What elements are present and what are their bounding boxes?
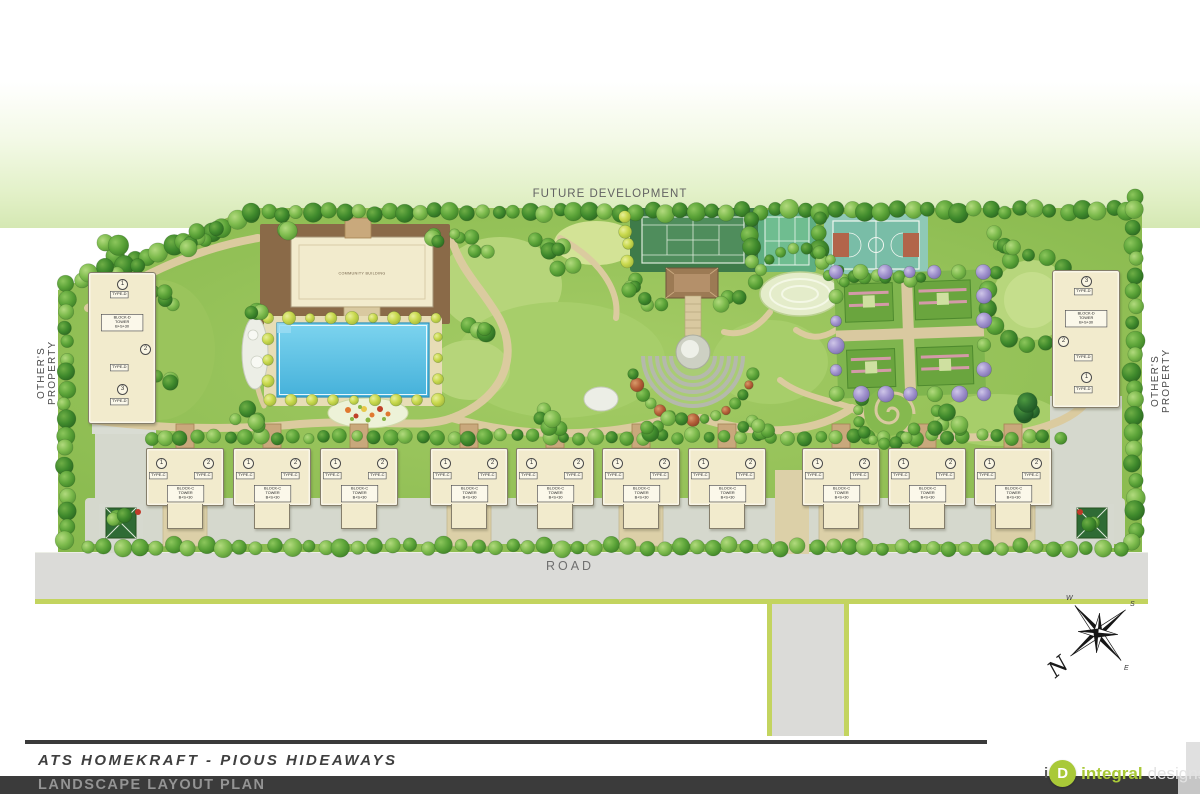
others-property-label-right: OTHER'S PROPERTY: [1150, 326, 1172, 436]
tower-block: 12TYPE-CTYPE-CBLOCK-CTOWERB+S+30: [888, 448, 966, 530]
unit-type-label: TYPE-D: [1074, 354, 1092, 361]
tower-block: 12TYPE-CTYPE-CBLOCK-CTOWERB+S+30: [233, 448, 311, 530]
unit-number: 1: [440, 458, 451, 469]
tower-block: 12TYPE-CTYPE-CBLOCK-CTOWERB+S+30: [430, 448, 508, 530]
unit-type-label: TYPE-C: [519, 472, 537, 479]
unit-type-label: TYPE-D: [1074, 288, 1092, 295]
tower-info-box: BLOCK-CTOWERB+S+30: [823, 485, 860, 502]
unit-type-label: TYPE-D: [110, 291, 128, 298]
tower-block: 12TYPE-CTYPE-CBLOCK-CTOWERB+S+30: [146, 448, 224, 530]
unit-number: 2: [659, 458, 670, 469]
unit-number: 2: [203, 458, 214, 469]
unit-type-label: TYPE-C: [323, 472, 341, 479]
tower-info-box: BLOCK-CTOWERB+S+30: [623, 485, 660, 502]
unit-type-label: TYPE-C: [281, 472, 299, 479]
tower-wing: [341, 504, 377, 529]
unit-type-label: TYPE-D: [110, 398, 128, 405]
logo-suffix: designs: [1148, 764, 1200, 784]
unit-number: 1: [156, 458, 167, 469]
tower-info-box: BLOCK-CTOWERB+S+30: [254, 485, 291, 502]
tower-wing: [995, 504, 1031, 529]
tower-info-box: BLOCK-CTOWERB+S+30: [341, 485, 378, 502]
unit-type-label: TYPE-C: [149, 472, 167, 479]
unit-number: 1: [812, 458, 823, 469]
plan-title-bar: LANDSCAPE LAYOUT PLAN: [0, 776, 1178, 794]
unit-number: 1: [1081, 372, 1092, 383]
unit-number: 1: [330, 458, 341, 469]
tower-wing: [823, 504, 859, 529]
unit-number: 2: [487, 458, 498, 469]
tower-block: 12TYPE-CTYPE-CBLOCK-CTOWERB+S+30: [802, 448, 880, 530]
future-development-label: FUTURE DEVELOPMENT: [480, 188, 740, 200]
unit-type-label: TYPE-C: [564, 472, 582, 479]
tower-info-line: B+S+30: [1066, 321, 1107, 325]
others-property-label-left: OTHER'S PROPERTY: [36, 318, 58, 428]
logo-d-letter: D: [1057, 765, 1068, 782]
unit-number: 2: [290, 458, 301, 469]
unit-type-label: TYPE-C: [478, 472, 496, 479]
tower-block-right: 3 TYPE-D BLOCK-D TOWER B+S+30 2 TYPE-D 1…: [1052, 270, 1120, 408]
logo-name: integral: [1081, 764, 1142, 784]
tower-block: 12TYPE-CTYPE-CBLOCK-CTOWERB+S+30: [516, 448, 594, 530]
tower-info-line: B+S+30: [624, 496, 660, 500]
residential-towers-layer: 1 TYPE-D BLOCK-D TOWER B+S+30 2 TYPE-D 3…: [0, 0, 1200, 794]
unit-type-label: TYPE-D: [110, 364, 128, 371]
unit-type-label: TYPE-C: [805, 472, 823, 479]
unit-type-label: TYPE-C: [605, 472, 623, 479]
tower-info-line: B+S+30: [710, 496, 746, 500]
tower-info-line: B+S+30: [910, 496, 946, 500]
unit-type-label: TYPE-C: [1022, 472, 1040, 479]
tower-wing: [451, 504, 487, 529]
tower-wing: [709, 504, 745, 529]
tower-info-line: B+S+30: [102, 325, 143, 329]
tower-block-left: 1 TYPE-D BLOCK-D TOWER B+S+30 2 TYPE-D 3…: [88, 272, 156, 424]
tower-wing: [909, 504, 945, 529]
unit-number: 1: [984, 458, 995, 469]
unit-type-label: TYPE-C: [194, 472, 212, 479]
tower-block: 12TYPE-CTYPE-CBLOCK-CTOWERB+S+30: [320, 448, 398, 530]
unit-number: 3: [1081, 276, 1092, 287]
unit-number: 1: [698, 458, 709, 469]
community-building-label: COMMUNITY BUILDING: [331, 272, 393, 276]
unit-number: 2: [859, 458, 870, 469]
unit-type-label: TYPE-D: [1074, 386, 1092, 393]
tower-info-line: B+S+30: [452, 496, 488, 500]
tower-info-line: B+S+30: [996, 496, 1032, 500]
unit-type-label: TYPE-C: [977, 472, 995, 479]
plan-title: LANDSCAPE LAYOUT PLAN: [38, 776, 266, 794]
logo-circle-mark: D: [1049, 760, 1076, 787]
unit-number: 3: [117, 384, 128, 395]
road-label: ROAD: [500, 559, 640, 573]
tower-wing: [537, 504, 573, 529]
unit-number: 1: [526, 458, 537, 469]
unit-type-label: TYPE-C: [236, 472, 254, 479]
unit-number: 2: [745, 458, 756, 469]
unit-number: 1: [243, 458, 254, 469]
tower-info-box: BLOCK-CTOWERB+S+30: [995, 485, 1032, 502]
tower-block: 12TYPE-CTYPE-CBLOCK-CTOWERB+S+30: [974, 448, 1052, 530]
unit-number: 2: [1058, 336, 1069, 347]
tower-info-box: BLOCK-CTOWERB+S+30: [909, 485, 946, 502]
unit-number: 1: [117, 279, 128, 290]
tower-wing: [167, 504, 203, 529]
tower-block: 12TYPE-CTYPE-CBLOCK-CTOWERB+S+30: [602, 448, 680, 530]
unit-type-label: TYPE-C: [736, 472, 754, 479]
footer-rule: [25, 740, 987, 744]
unit-number: 1: [898, 458, 909, 469]
tower-info-box: BLOCK-D TOWER B+S+30: [101, 314, 143, 331]
unit-type-label: TYPE-C: [936, 472, 954, 479]
unit-type-label: TYPE-C: [368, 472, 386, 479]
integral-designs-logo: i D integral designs: [1044, 760, 1200, 787]
tower-wing: [623, 504, 659, 529]
tower-info-box: BLOCK-CTOWERB+S+30: [537, 485, 574, 502]
tower-info-box: BLOCK-D TOWER B+S+30: [1065, 310, 1107, 327]
unit-type-label: TYPE-C: [433, 472, 451, 479]
tower-info-line: B+S+30: [538, 496, 574, 500]
tower-info-box: BLOCK-CTOWERB+S+30: [451, 485, 488, 502]
tower-info-line: B+S+30: [824, 496, 860, 500]
tower-block: 12TYPE-CTYPE-CBLOCK-CTOWERB+S+30: [688, 448, 766, 530]
unit-number: 1: [612, 458, 623, 469]
unit-type-label: TYPE-C: [650, 472, 668, 479]
unit-type-label: TYPE-C: [691, 472, 709, 479]
tower-info-line: B+S+30: [255, 496, 291, 500]
landscape-layout-plan-page: N E S W FUTURE DEVELOPMENT OTHER'S PROPE…: [0, 0, 1200, 794]
unit-number: 2: [945, 458, 956, 469]
tower-info-line: B+S+30: [168, 496, 204, 500]
unit-type-label: TYPE-C: [850, 472, 868, 479]
project-title: ATS HOMEKRAFT - PIOUS HIDEAWAYS: [38, 752, 397, 769]
logo-i-mark: i: [1044, 765, 1048, 782]
tower-info-box: BLOCK-CTOWERB+S+30: [709, 485, 746, 502]
unit-number: 2: [377, 458, 388, 469]
unit-type-label: TYPE-C: [891, 472, 909, 479]
tower-info-box: BLOCK-CTOWERB+S+30: [167, 485, 204, 502]
unit-number: 2: [140, 344, 151, 355]
tower-info-line: B+S+30: [342, 496, 378, 500]
unit-number: 2: [573, 458, 584, 469]
unit-number: 2: [1031, 458, 1042, 469]
tower-wing: [254, 504, 290, 529]
